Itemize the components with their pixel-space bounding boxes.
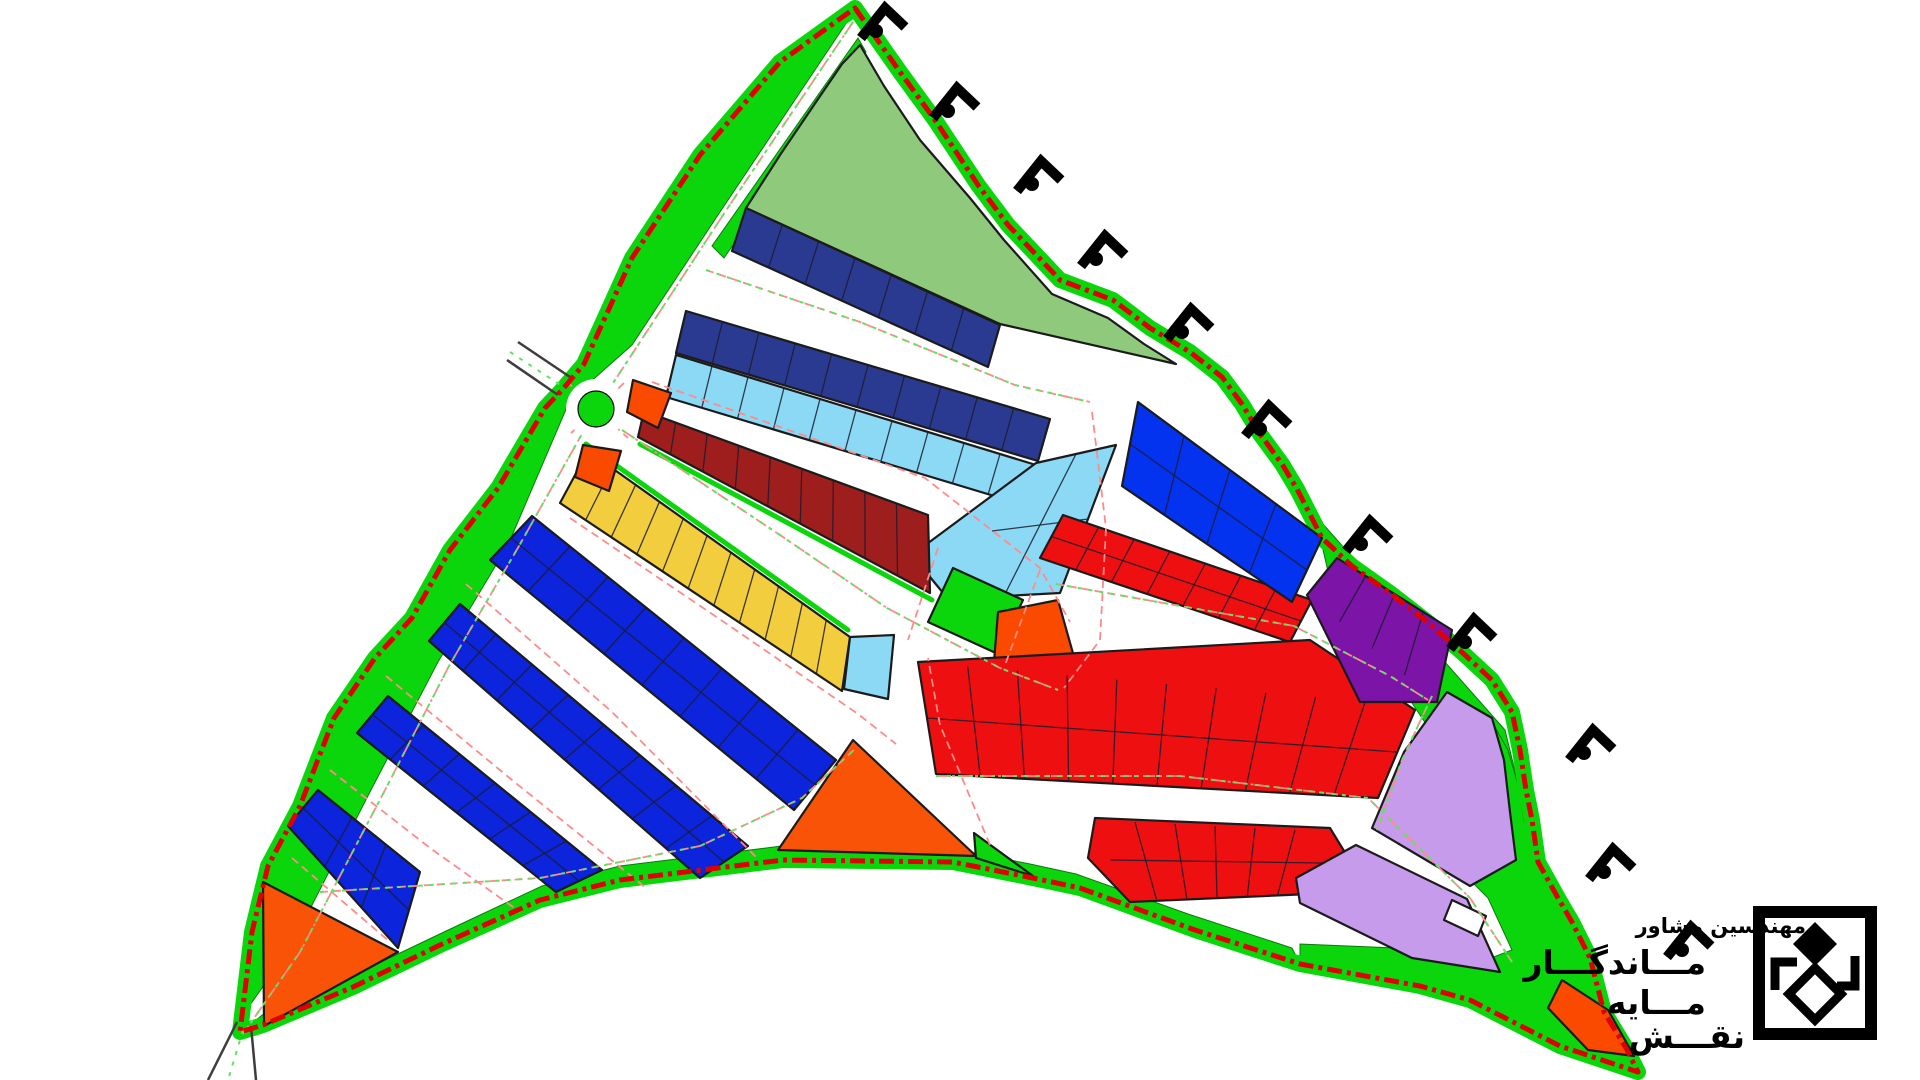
end-cyan-yellow-row [844,635,894,699]
row-maroon-lot-line [833,480,834,541]
roundabout-island [578,391,614,427]
logo-line-naghsh: نقـــش [1628,1020,1745,1053]
logo-line-mayeh: مـــايه [1607,986,1706,1019]
site-plan-stage: مهندسین مشاور مـــاندگـــار مـــايه نقــ… [0,0,1920,1080]
logo-line-consultants: مهندسین مشاور [1636,916,1806,937]
zoning-map-svg [0,0,1920,1080]
logo-line-mandegar: مـــاندگـــار [1523,946,1706,979]
